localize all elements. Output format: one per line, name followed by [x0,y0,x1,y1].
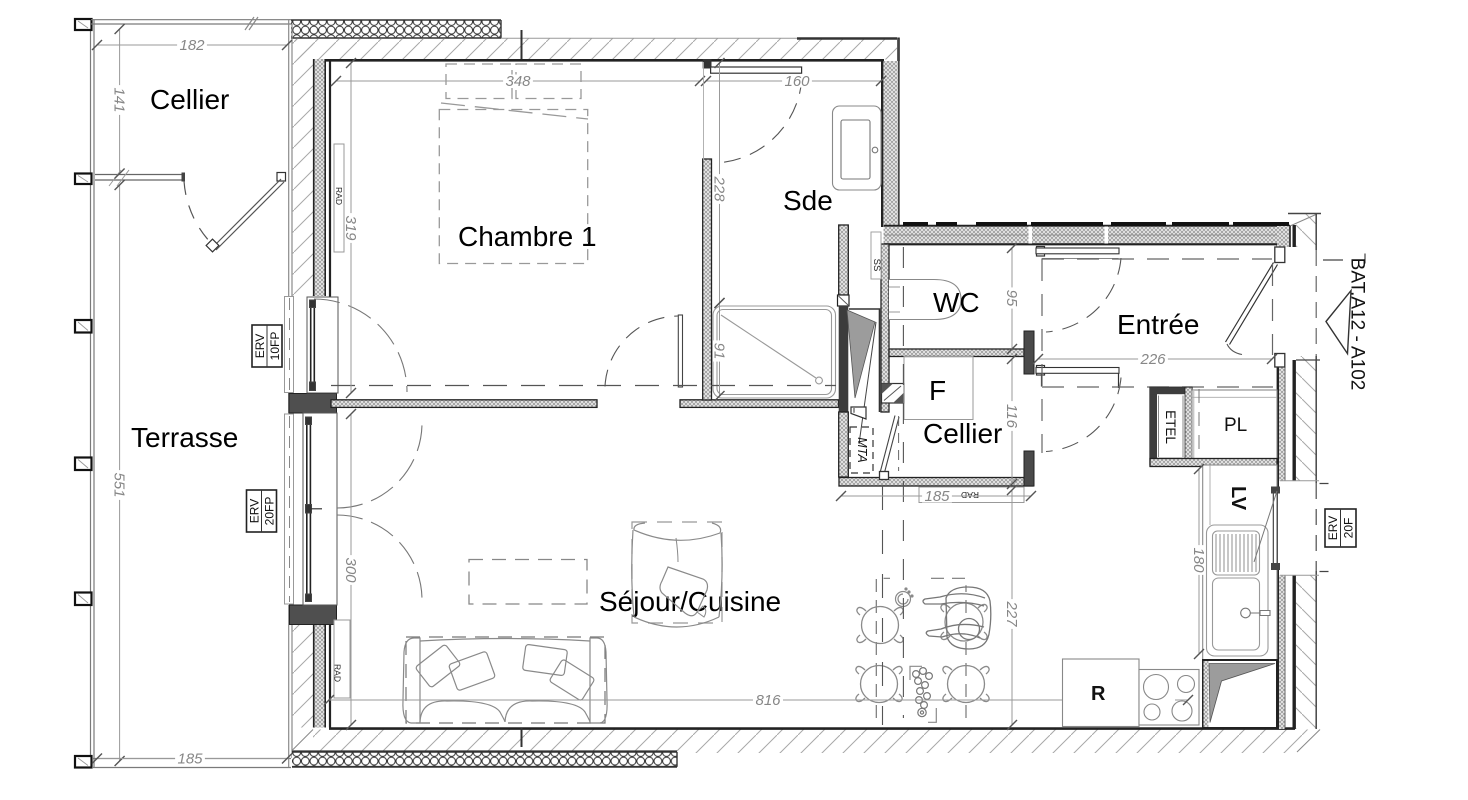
svg-text:LV: LV [1227,486,1249,511]
svg-text:10FP: 10FP [268,332,282,361]
svg-text:185: 185 [924,488,950,505]
svg-text:91: 91 [711,343,728,360]
svg-text:Cellier: Cellier [923,418,1002,449]
svg-text:ETEL: ETEL [1163,410,1178,444]
svg-text:Chambre 1: Chambre 1 [458,221,597,252]
svg-text:Sde: Sde [783,185,833,216]
svg-text:SS: SS [871,259,882,272]
svg-text:MTA: MTA [855,437,869,462]
svg-text:PL: PL [1224,415,1247,436]
svg-text:F: F [929,375,946,406]
svg-text:228: 228 [711,175,728,202]
svg-text:226: 226 [1139,351,1166,368]
svg-text:RAD: RAD [333,664,343,682]
svg-text:BAT.A12 - A102: BAT.A12 - A102 [1347,258,1368,391]
svg-text:348: 348 [505,73,531,90]
svg-text:141: 141 [111,87,128,112]
svg-text:WC: WC [933,287,980,318]
svg-text:Cellier: Cellier [150,84,229,115]
svg-text:816: 816 [755,692,781,709]
svg-text:ERV: ERV [247,499,261,523]
svg-text:Séjour/Cuisine: Séjour/Cuisine [599,586,781,617]
svg-text:Entrée: Entrée [1117,309,1200,340]
svg-text:182: 182 [179,37,205,54]
svg-text:Terrasse: Terrasse [131,422,238,453]
svg-text:RAD: RAD [334,187,344,205]
svg-text:160: 160 [784,73,810,90]
svg-text:227: 227 [1003,600,1020,627]
svg-text:116: 116 [1003,404,1020,429]
svg-text:ERV: ERV [253,334,267,358]
svg-text:RAD: RAD [961,490,979,500]
svg-text:20F: 20F [1342,518,1356,539]
svg-text:300: 300 [342,557,359,583]
svg-text:180: 180 [1190,547,1207,573]
svg-text:319: 319 [342,215,359,241]
svg-text:551: 551 [111,472,128,497]
svg-text:95: 95 [1003,290,1020,307]
svg-text:ERV: ERV [1326,516,1340,540]
svg-text:20FP: 20FP [262,497,276,526]
svg-text:185: 185 [177,751,203,768]
svg-text:R: R [1091,683,1106,705]
